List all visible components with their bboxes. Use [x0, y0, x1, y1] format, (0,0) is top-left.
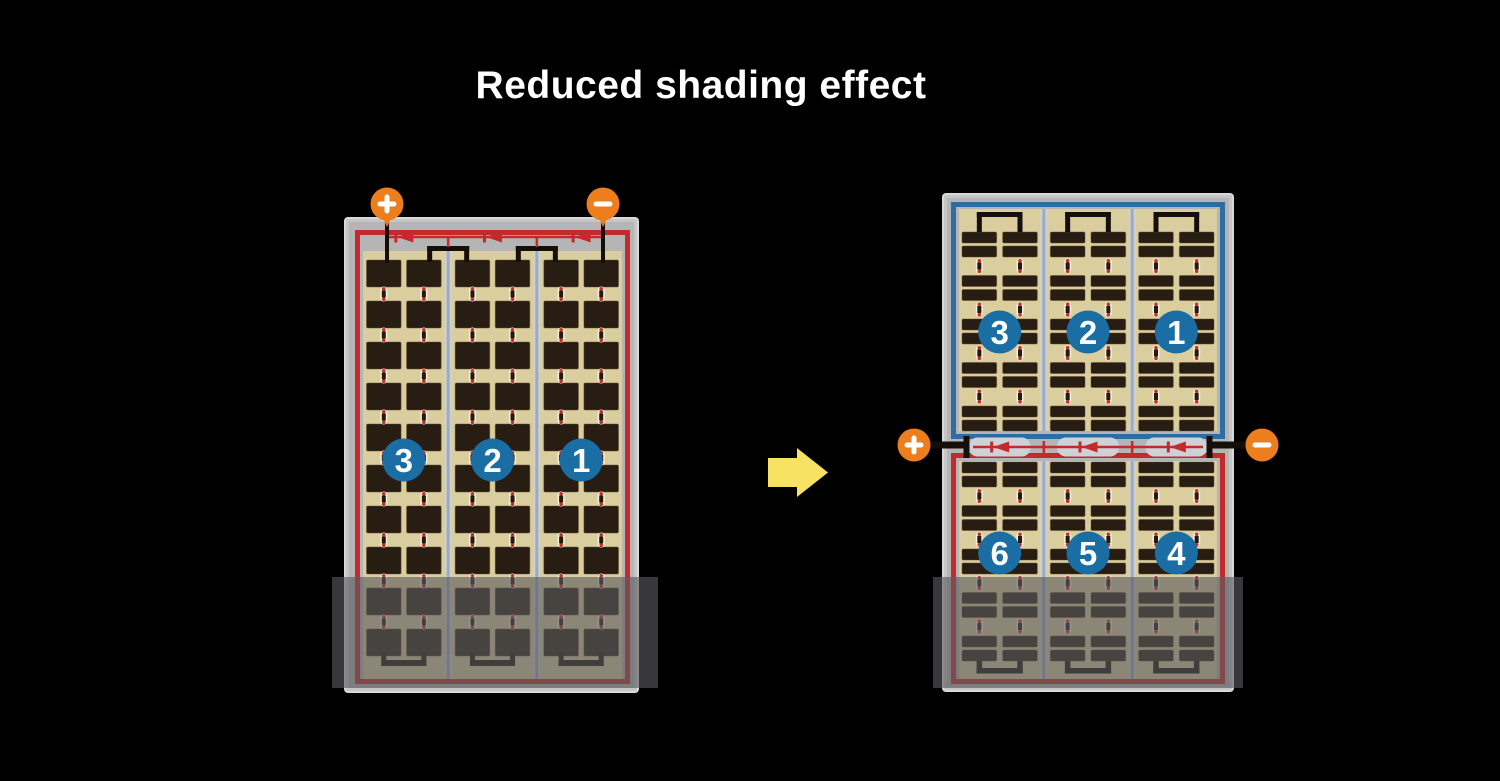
solar-cell: [584, 260, 619, 287]
connector-core: [470, 537, 474, 544]
cell-connector: [1105, 259, 1112, 274]
connector-dot: [511, 379, 515, 383]
diode-bar: [1079, 442, 1082, 453]
connector-dot: [978, 390, 982, 394]
connector-dot: [599, 338, 603, 342]
connector-dot: [559, 420, 563, 424]
cell-connector: [1193, 259, 1200, 274]
connector-core: [599, 537, 603, 544]
cell-connector: [380, 410, 387, 425]
badge-label: 2: [1079, 314, 1097, 351]
cell-connector: [469, 328, 476, 343]
half-cut-cell: [1139, 377, 1174, 388]
connector-dot: [559, 338, 563, 342]
connector-dot: [511, 328, 515, 332]
connector-dot: [1066, 303, 1070, 307]
connector-dot: [1154, 489, 1158, 493]
connector-dot: [422, 543, 426, 547]
solar-cell: [407, 383, 442, 410]
connector-core: [977, 263, 981, 270]
solar-cell: [495, 547, 530, 574]
half-cut-cell: [1091, 420, 1126, 431]
connector-core: [1154, 263, 1158, 270]
connector-core: [599, 496, 603, 503]
half-cut-cell: [1091, 406, 1126, 417]
connector-core: [511, 537, 515, 544]
terminal-wire: [964, 436, 970, 458]
connector-core: [1018, 263, 1022, 270]
string-wire: [1194, 212, 1199, 232]
connector-dot: [511, 533, 515, 537]
connector-core: [599, 414, 603, 421]
cell-connector: [1017, 389, 1024, 404]
half-cut-cell: [1050, 476, 1085, 487]
connector-dot: [1154, 346, 1158, 350]
connector-dot: [559, 379, 563, 383]
connector-dot: [1018, 533, 1022, 537]
cell-connector: [1064, 389, 1071, 404]
half-cut-cell: [1091, 246, 1126, 257]
terminal-sign-bar: [385, 195, 390, 214]
connector-dot: [471, 287, 475, 291]
cell-connector: [509, 287, 516, 302]
cell-connector: [1153, 259, 1160, 274]
solar-cell: [584, 342, 619, 369]
string-badge: 1: [560, 439, 603, 482]
terminal-sign-bar: [912, 436, 917, 455]
string-wire: [1106, 212, 1111, 232]
connector-dot: [1107, 346, 1111, 350]
connector-dot: [511, 369, 515, 373]
cell-connector: [558, 533, 565, 548]
connector-dot: [422, 379, 426, 383]
half-cut-cell: [1179, 420, 1214, 431]
connector-core: [470, 291, 474, 298]
connector-core: [1106, 536, 1110, 543]
connector-core: [1195, 493, 1199, 500]
half-cut-cell: [1139, 246, 1174, 257]
cell-connector: [420, 410, 427, 425]
half-cut-cell: [962, 290, 997, 301]
half-cut-cell: [962, 520, 997, 531]
half-cut-cell: [1179, 246, 1214, 257]
connector-core: [1154, 306, 1158, 313]
plus-circle-icon: [898, 429, 931, 462]
cell-connector: [976, 346, 983, 361]
connector-core: [1018, 350, 1022, 357]
connector-core: [1195, 393, 1199, 400]
cell-connector: [420, 533, 427, 548]
half-cut-cell: [1179, 290, 1214, 301]
connector-dot: [1066, 499, 1070, 503]
connector-dot: [471, 543, 475, 547]
connector-dot: [422, 369, 426, 373]
half-cut-cell: [1139, 290, 1174, 301]
connector-dot: [1195, 303, 1199, 307]
bus-tick: [536, 237, 539, 247]
connector-dot: [1154, 499, 1158, 503]
half-cut-cell: [1050, 246, 1085, 257]
string-badge: 6: [978, 532, 1021, 575]
connector-dot: [1107, 489, 1111, 493]
connector-dot: [978, 533, 982, 537]
connector-dot: [1107, 303, 1111, 307]
half-cut-cell: [1050, 377, 1085, 388]
connector-dot: [559, 410, 563, 414]
cell-connector: [380, 287, 387, 302]
connector-dot: [978, 400, 982, 404]
connector-dot: [1018, 499, 1022, 503]
badge-label: 5: [1079, 535, 1097, 572]
solar-cell: [544, 260, 579, 287]
connector-dot: [1154, 269, 1158, 273]
connector-dot: [1195, 269, 1199, 273]
terminal-sign-bar: [1253, 443, 1272, 448]
connector-dot: [382, 338, 386, 342]
half-cut-cell: [1179, 476, 1214, 487]
solar-cell: [455, 506, 490, 533]
half-cut-cell: [1003, 420, 1038, 431]
cell-connector: [1105, 389, 1112, 404]
half-cut-cell: [1091, 520, 1126, 531]
connector-core: [1066, 263, 1070, 270]
cell-connector: [598, 328, 605, 343]
connector-core: [470, 414, 474, 421]
connector-core: [977, 306, 981, 313]
half-cut-cell: [962, 276, 997, 287]
connector-dot: [1066, 489, 1070, 493]
connector-dot: [599, 369, 603, 373]
connector-core: [1154, 536, 1158, 543]
terminal-wire: [928, 442, 966, 449]
connector-dot: [978, 269, 982, 273]
connector-dot: [511, 338, 515, 342]
connector-core: [977, 536, 981, 543]
connector-core: [1154, 393, 1158, 400]
half-cut-cell: [1050, 420, 1085, 431]
right-arrow-icon: [768, 448, 828, 497]
cell-connector: [1064, 302, 1071, 317]
connector-core: [511, 373, 515, 380]
cell-connector: [420, 369, 427, 384]
badge-label: 6: [990, 535, 1008, 572]
connector-dot: [471, 369, 475, 373]
diode-bar: [1167, 442, 1170, 453]
connector-core: [1018, 493, 1022, 500]
cell-connector: [976, 259, 983, 274]
half-cut-cell: [1003, 377, 1038, 388]
connector-core: [559, 414, 563, 421]
connector-core: [1066, 393, 1070, 400]
string-wire: [516, 246, 521, 262]
connector-dot: [1018, 346, 1022, 350]
connector-dot: [471, 492, 475, 496]
connector-core: [599, 332, 603, 339]
connector-dot: [559, 287, 563, 291]
diode-bar: [483, 232, 486, 243]
connector-dot: [1066, 390, 1070, 394]
connector-dot: [1195, 390, 1199, 394]
connector-dot: [599, 543, 603, 547]
half-cut-cell: [1050, 276, 1085, 287]
connector-dot: [559, 369, 563, 373]
cell-connector: [1153, 389, 1160, 404]
connector-core: [1106, 263, 1110, 270]
connector-dot: [422, 492, 426, 496]
solar-cell: [407, 506, 442, 533]
solar-cell: [455, 383, 490, 410]
connector-dot: [599, 533, 603, 537]
connector-dot: [1195, 346, 1199, 350]
cell-connector: [598, 287, 605, 302]
cell-connector: [1017, 346, 1024, 361]
connector-dot: [471, 338, 475, 342]
connector-dot: [471, 297, 475, 301]
connector-core: [422, 414, 426, 421]
half-cut-cell: [1003, 476, 1038, 487]
half-cut-cell: [1139, 363, 1174, 374]
connector-dot: [559, 492, 563, 496]
connector-core: [977, 493, 981, 500]
connector-core: [1106, 350, 1110, 357]
badge-label: 1: [1167, 314, 1185, 351]
connector-core: [1066, 536, 1070, 543]
bus-tick: [1043, 441, 1046, 453]
cell-connector: [469, 410, 476, 425]
badge-label: 2: [483, 442, 501, 479]
cell-connector: [598, 492, 605, 507]
cell-connector: [1193, 489, 1200, 504]
cell-connector: [1105, 346, 1112, 361]
half-cut-cell: [1091, 276, 1126, 287]
connector-core: [470, 496, 474, 503]
connector-core: [511, 332, 515, 339]
connector-dot: [471, 328, 475, 332]
connector-core: [1066, 493, 1070, 500]
connector-dot: [422, 287, 426, 291]
connector-dot: [1195, 400, 1199, 404]
connector-dot: [599, 297, 603, 301]
badge-label: 4: [1167, 535, 1186, 572]
connector-dot: [471, 420, 475, 424]
cell-connector: [509, 410, 516, 425]
half-cut-cell: [1050, 462, 1085, 473]
connector-core: [422, 537, 426, 544]
connector-dot: [382, 297, 386, 301]
string-wire: [1018, 212, 1023, 232]
connector-dot: [1066, 269, 1070, 273]
connector-core: [382, 537, 386, 544]
cell-connector: [1017, 259, 1024, 274]
cell-connector: [976, 489, 983, 504]
connector-dot: [1107, 259, 1111, 263]
string-wire: [464, 246, 469, 262]
half-cut-cell: [1091, 462, 1126, 473]
string-badge: 5: [1067, 532, 1110, 575]
connector-dot: [599, 420, 603, 424]
half-cut-cell: [1139, 232, 1174, 243]
connector-dot: [978, 356, 982, 360]
string-wire: [1154, 212, 1200, 217]
cell-connector: [598, 533, 605, 548]
connector-dot: [1195, 313, 1199, 317]
connector-dot: [1066, 346, 1070, 350]
connector-dot: [1195, 489, 1199, 493]
connector-dot: [382, 543, 386, 547]
cell-connector: [469, 287, 476, 302]
connector-core: [559, 373, 563, 380]
cell-connector: [380, 533, 387, 548]
cell-connector: [1064, 489, 1071, 504]
connector-core: [977, 350, 981, 357]
solar-cell: [495, 383, 530, 410]
connector-dot: [422, 420, 426, 424]
badge-label: 3: [395, 442, 413, 479]
cell-connector: [558, 287, 565, 302]
connector-core: [559, 496, 563, 503]
half-cut-cell: [1003, 246, 1038, 257]
half-cut-cell: [1003, 520, 1038, 531]
connector-core: [422, 373, 426, 380]
half-cut-cell: [1003, 232, 1038, 243]
cell-connector: [420, 492, 427, 507]
half-cut-cell: [1179, 520, 1214, 531]
solar-cell: [584, 383, 619, 410]
connector-core: [511, 414, 515, 421]
terminal-wire: [1207, 436, 1213, 458]
solar-cell: [407, 301, 442, 328]
connector-dot: [382, 502, 386, 506]
connector-dot: [559, 533, 563, 537]
connector-dot: [1018, 390, 1022, 394]
cell-connector: [380, 369, 387, 384]
cell-connector: [1193, 389, 1200, 404]
connector-dot: [422, 533, 426, 537]
half-cut-cell: [1091, 290, 1126, 301]
connector-dot: [422, 338, 426, 342]
connector-core: [382, 414, 386, 421]
solar-cell: [455, 260, 490, 287]
cell-connector: [469, 369, 476, 384]
connector-core: [1106, 393, 1110, 400]
connector-core: [1066, 350, 1070, 357]
half-cut-cell: [1139, 276, 1174, 287]
connector-dot: [1018, 259, 1022, 263]
badge-label: 1: [572, 442, 590, 479]
connector-core: [382, 496, 386, 503]
connector-dot: [978, 346, 982, 350]
connector-core: [599, 373, 603, 380]
half-cut-cell: [1139, 406, 1174, 417]
diode-bar: [990, 442, 993, 453]
connector-core: [1018, 393, 1022, 400]
cell-connector: [976, 302, 983, 317]
half-cut-cell: [1179, 276, 1214, 287]
connector-core: [382, 373, 386, 380]
solar-cell: [584, 506, 619, 533]
connector-dot: [599, 492, 603, 496]
connector-dot: [559, 543, 563, 547]
connector-dot: [1018, 356, 1022, 360]
cell-connector: [420, 328, 427, 343]
half-cut-cell: [1003, 363, 1038, 374]
half-cut-cell: [962, 462, 997, 473]
half-cut-cell: [1091, 377, 1126, 388]
connector-dot: [511, 287, 515, 291]
solar-cell: [367, 260, 402, 287]
cell-connector: [1064, 259, 1071, 274]
half-cut-cell: [1050, 232, 1085, 243]
string-badge: 3: [382, 439, 425, 482]
shading-overlay: [933, 577, 1243, 688]
connector-core: [382, 332, 386, 339]
cell-connector: [420, 287, 427, 302]
connector-dot: [1018, 269, 1022, 273]
half-cut-cell: [1003, 462, 1038, 473]
connector-core: [422, 332, 426, 339]
cell-connector: [598, 369, 605, 384]
connector-dot: [1107, 533, 1111, 537]
string-badge: 2: [1067, 311, 1110, 354]
solar-cell: [544, 301, 579, 328]
cell-connector: [558, 410, 565, 425]
connector-core: [1195, 306, 1199, 313]
connector-core: [559, 537, 563, 544]
connector-dot: [382, 379, 386, 383]
solar-cell: [544, 342, 579, 369]
connector-core: [1106, 493, 1110, 500]
cell-connector: [1064, 346, 1071, 361]
connector-dot: [382, 533, 386, 537]
solar-cell: [367, 547, 402, 574]
solar-cell: [407, 260, 442, 287]
connector-core: [559, 332, 563, 339]
connector-dot: [1018, 313, 1022, 317]
connector-core: [511, 496, 515, 503]
shading-effect-diagram: 321321654: [0, 0, 1500, 781]
connector-dot: [1066, 400, 1070, 404]
cell-connector: [1105, 489, 1112, 504]
cell-connector: [1153, 489, 1160, 504]
connector-dot: [978, 313, 982, 317]
cell-connector: [558, 492, 565, 507]
connector-dot: [599, 410, 603, 414]
connector-core: [1018, 536, 1022, 543]
connector-dot: [511, 543, 515, 547]
solar-cell: [455, 547, 490, 574]
minus-circle-icon: [1246, 429, 1279, 462]
string-badge: 4: [1155, 532, 1198, 575]
connector-dot: [1107, 269, 1111, 273]
connector-dot: [978, 303, 982, 307]
solar-cell: [495, 301, 530, 328]
connector-dot: [422, 502, 426, 506]
terminal-sign-bar: [594, 202, 613, 207]
connector-dot: [382, 287, 386, 291]
connector-dot: [1195, 356, 1199, 360]
solar-cell: [407, 547, 442, 574]
half-cut-cell: [962, 363, 997, 374]
connector-dot: [1154, 356, 1158, 360]
cell-connector: [1153, 302, 1160, 317]
connector-dot: [1107, 390, 1111, 394]
half-cut-cell: [1139, 506, 1174, 517]
connector-dot: [1154, 390, 1158, 394]
half-cut-cell: [1091, 232, 1126, 243]
connector-dot: [1107, 313, 1111, 317]
half-cut-cell: [962, 406, 997, 417]
string-wire: [1154, 212, 1159, 232]
